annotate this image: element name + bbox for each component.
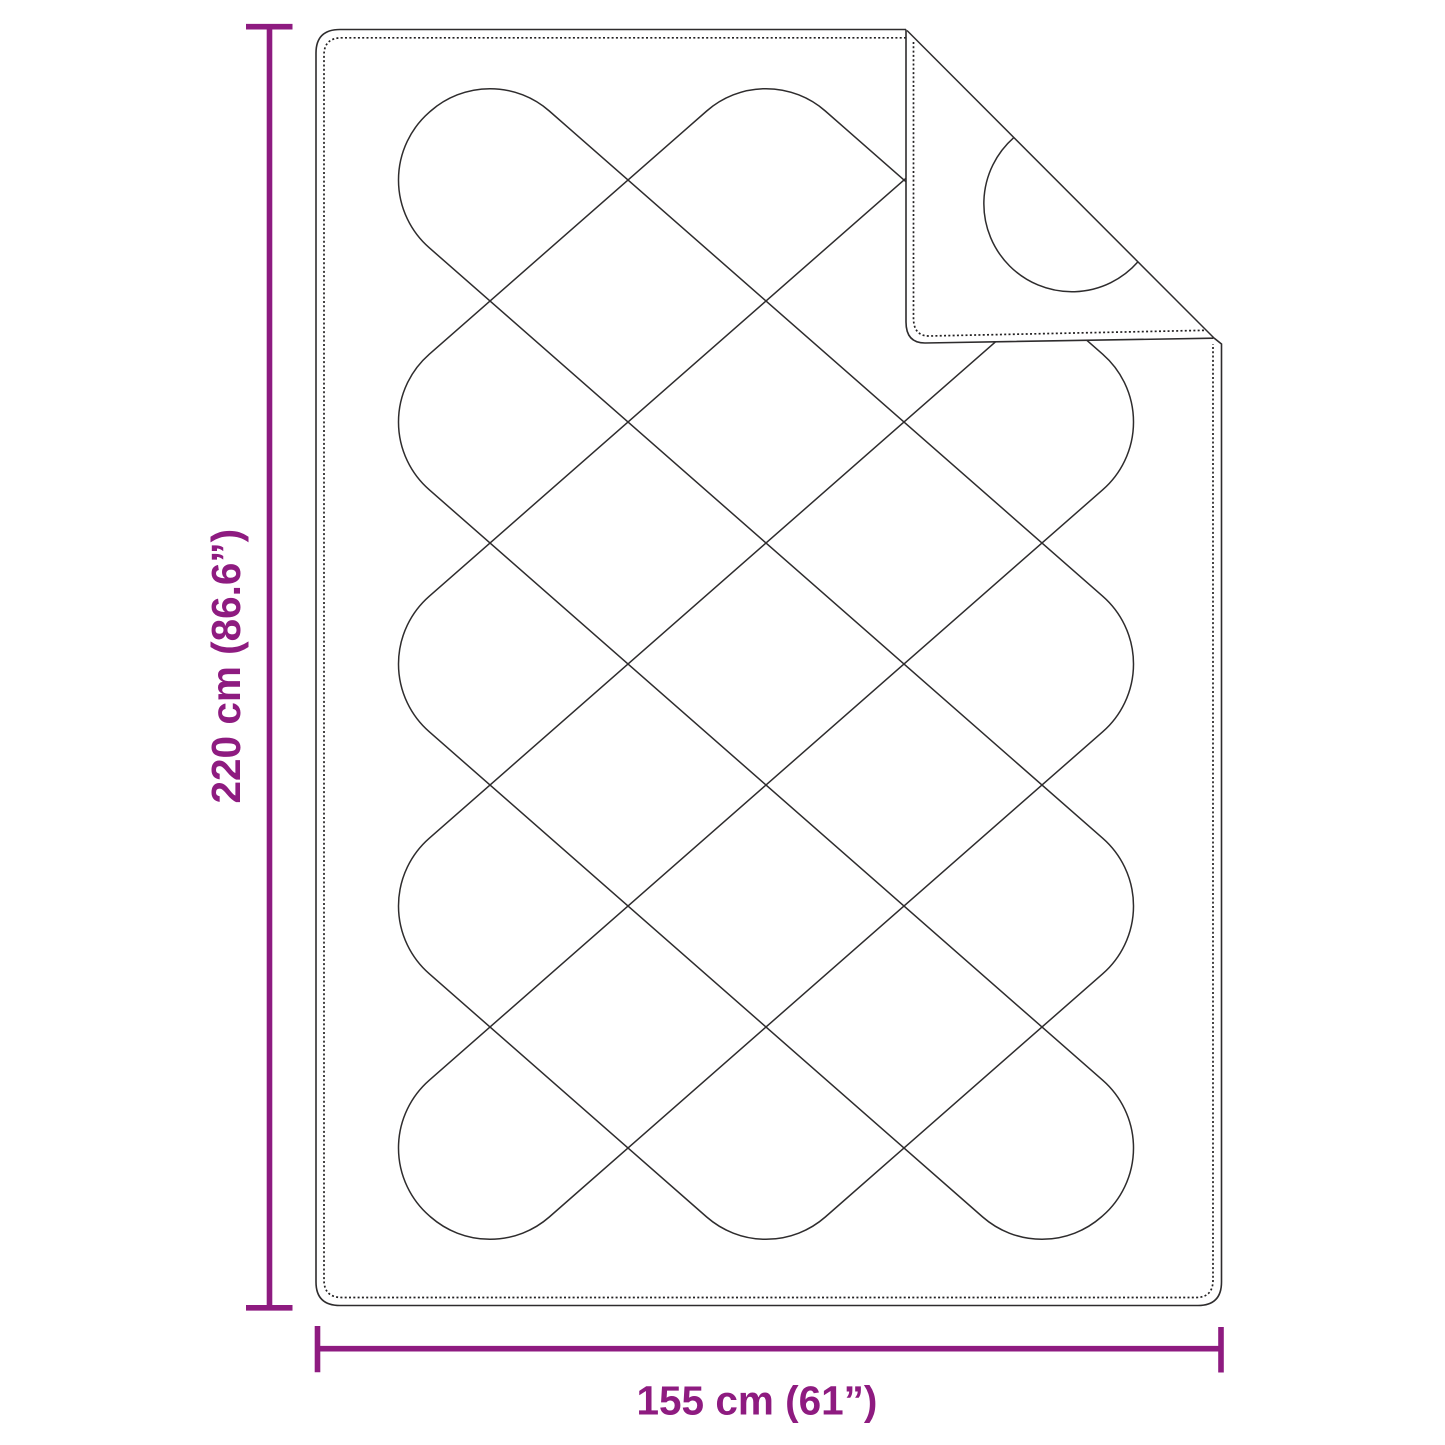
svg-text:155 cm (61”): 155 cm (61”) bbox=[637, 1378, 878, 1424]
svg-text:220 cm (86.6”): 220 cm (86.6”) bbox=[203, 529, 249, 804]
